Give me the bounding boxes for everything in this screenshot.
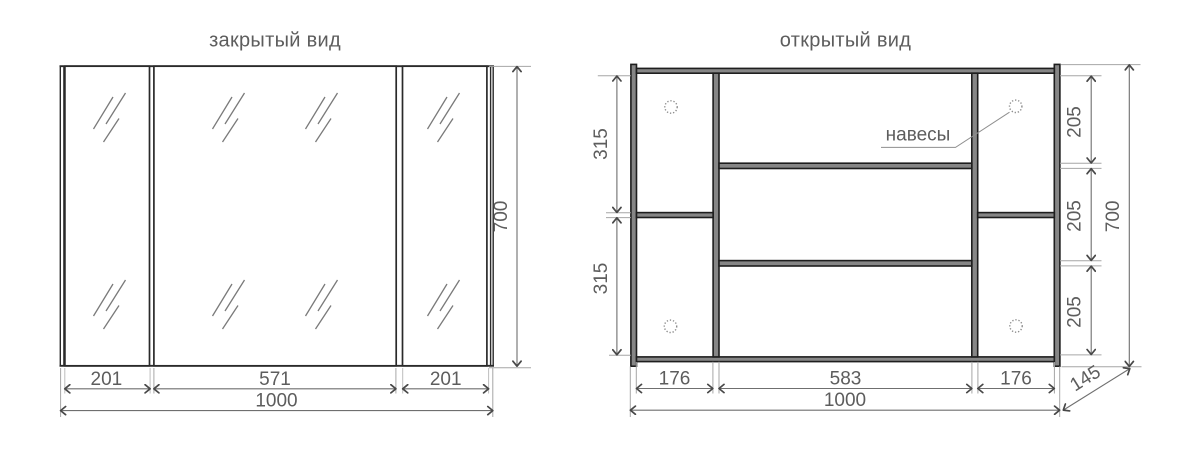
svg-text:700: 700 (491, 201, 512, 233)
svg-text:176: 176 (659, 369, 691, 390)
svg-text:700: 700 (1103, 201, 1124, 233)
svg-text:571: 571 (259, 369, 291, 390)
svg-text:205: 205 (1064, 296, 1085, 328)
svg-text:открытый вид: открытый вид (780, 30, 911, 52)
svg-text:205: 205 (1064, 200, 1085, 232)
svg-text:176: 176 (1000, 369, 1032, 390)
svg-text:201: 201 (91, 369, 123, 390)
svg-text:навесы: навесы (886, 125, 951, 146)
svg-text:201: 201 (430, 369, 462, 390)
svg-text:315: 315 (591, 128, 612, 160)
svg-text:1000: 1000 (824, 390, 866, 411)
svg-text:315: 315 (591, 263, 612, 295)
svg-text:583: 583 (830, 369, 862, 390)
svg-text:205: 205 (1064, 106, 1085, 138)
svg-text:закрытый вид: закрытый вид (209, 30, 341, 52)
svg-text:1000: 1000 (255, 391, 297, 412)
